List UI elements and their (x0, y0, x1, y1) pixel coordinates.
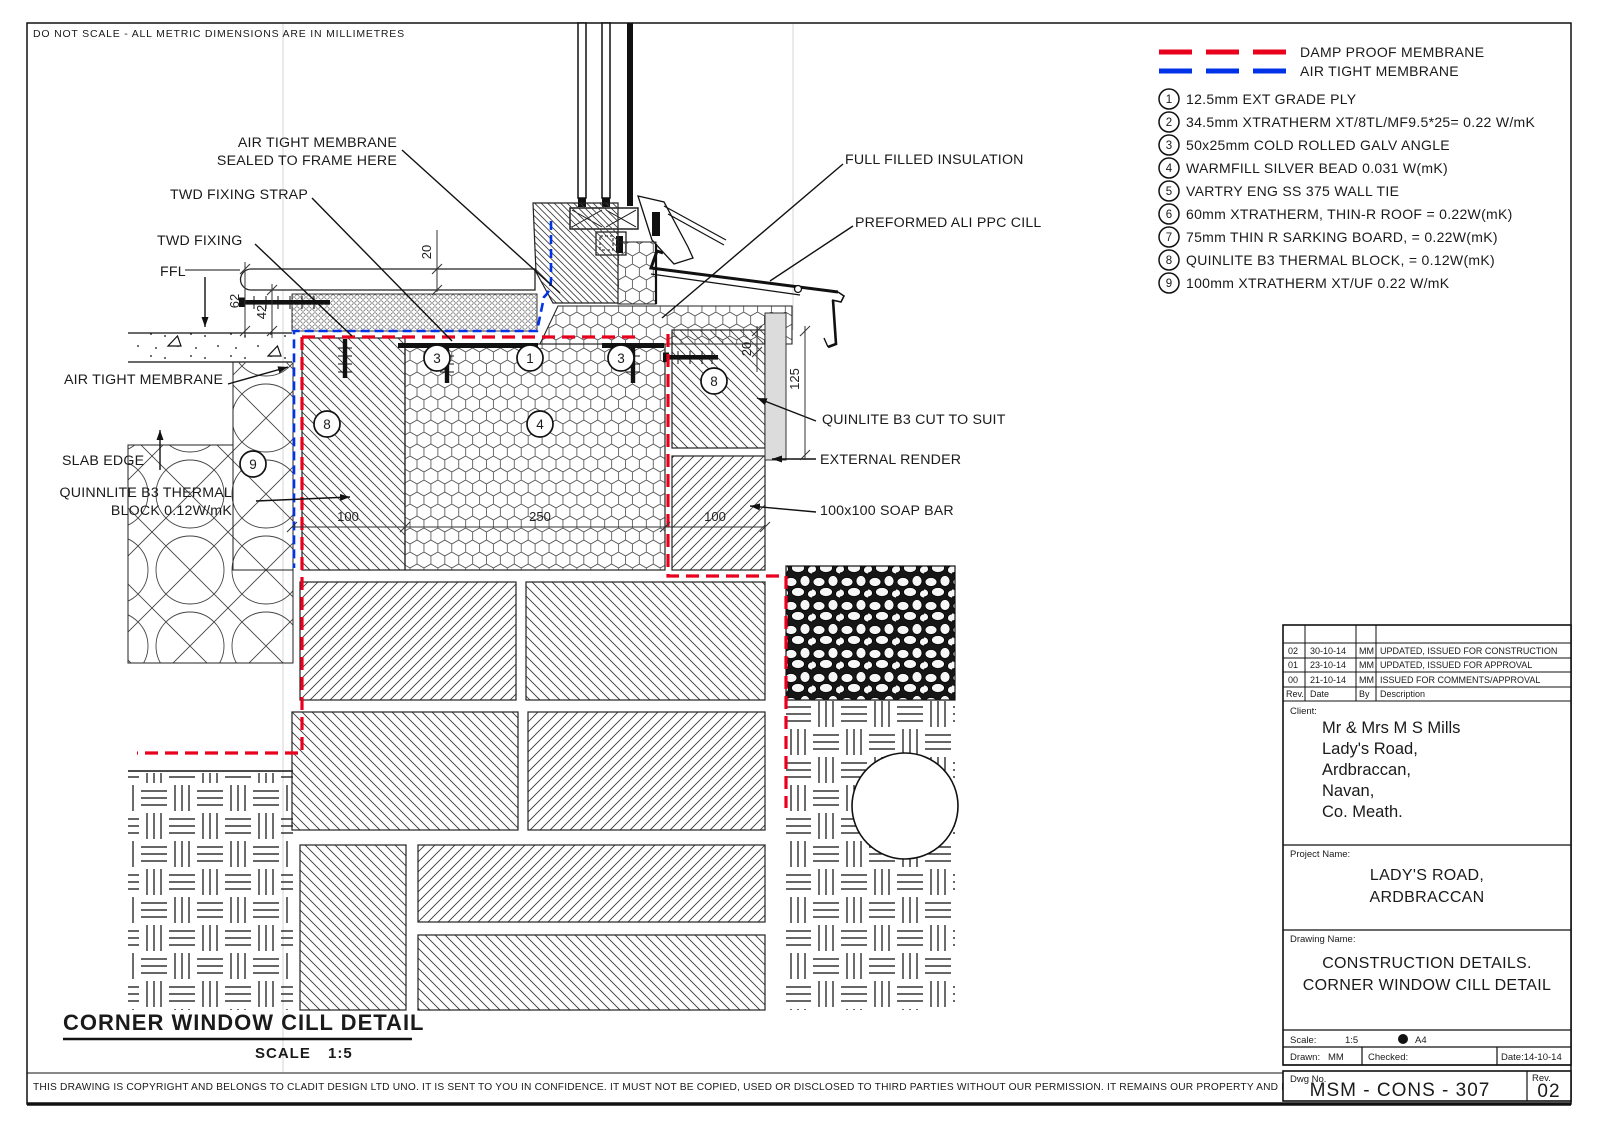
dim-250: 250 (529, 509, 551, 524)
dim-render: 20 (739, 342, 754, 356)
label-twd-fixing: TWD FIXING (157, 233, 243, 249)
svg-text:2: 2 (1166, 117, 1172, 129)
svg-text:4: 4 (1166, 163, 1173, 175)
drawing-name-label: Drawing Name: (1290, 934, 1355, 945)
svg-text:ISSUED FOR COMMENTS/APPROVAL: ISSUED FOR COMMENTS/APPROVAL (1380, 675, 1540, 685)
svg-text:23-10-14: 23-10-14 (1310, 660, 1346, 670)
title-block: 02 30-10-14 MM UPDATED, ISSUED FOR CONST… (1283, 625, 1571, 1102)
drawing-sheet: DO NOT SCALE - ALL METRIC DIMENSIONS ARE… (0, 0, 1600, 1130)
svg-text:Ardbraccan,: Ardbraccan, (1322, 761, 1411, 779)
svg-text:Lady's Road,: Lady's Road, (1322, 740, 1418, 758)
dim-board: 20 (419, 245, 434, 259)
dim-62: 62 (227, 294, 242, 308)
label-ffl: FFL (160, 264, 186, 280)
svg-text:WARMFILL SILVER BEAD 0.031 W(m: WARMFILL SILVER BEAD 0.031 W(mK) (1186, 160, 1448, 176)
label-slab-edge: SLAB EDGE (62, 453, 144, 469)
svg-text:34.5mm XTRATHERM XT/8TL/MF9.5*: 34.5mm XTRATHERM XT/8TL/MF9.5*25= 0.22 W… (1186, 114, 1535, 130)
svg-text:8: 8 (323, 417, 331, 432)
svg-text:50x25mm COLD ROLLED GALV ANGLE: 50x25mm COLD ROLLED GALV ANGLE (1186, 137, 1450, 153)
legend-item-9: 9100mm XTRATHERM XT/UF 0.22 W/mK (1159, 273, 1450, 293)
svg-text:CORNER WINDOW CILL DETAIL: CORNER WINDOW CILL DETAIL (1303, 977, 1551, 994)
svg-text:4: 4 (536, 417, 544, 432)
svg-text:75mm THIN R SARKING BOARD, = 0: 75mm THIN R SARKING BOARD, = 0.22W(mK) (1186, 229, 1498, 245)
legend-item-7: 775mm THIN R SARKING BOARD, = 0.22W(mK) (1159, 227, 1498, 247)
callout-8-left: 8 (314, 411, 340, 437)
svg-text:Navan,: Navan, (1322, 782, 1374, 800)
scale-label: Scale: (1290, 1035, 1316, 1046)
cill-fixing-hole (795, 286, 802, 293)
svg-text:MM: MM (1359, 660, 1374, 670)
legend-item-2: 234.5mm XTRATHERM XT/8TL/MF9.5*25= 0.22 … (1159, 112, 1535, 132)
svg-text:5: 5 (1166, 186, 1172, 198)
svg-text:1: 1 (1166, 94, 1172, 106)
svg-text:LADY'S ROAD,: LADY'S ROAD, (1370, 867, 1484, 884)
slab-band (128, 333, 292, 362)
svg-text:Co. Meath.: Co. Meath. (1322, 803, 1403, 821)
svg-text:00: 00 (1288, 675, 1298, 685)
svg-text:QUINLITE B3 THERMAL BLOCK, = 0: QUINLITE B3 THERMAL BLOCK, = 0.12W(mK) (1186, 252, 1495, 268)
legend-item-4: 4WARMFILL SILVER BEAD 0.031 W(mK) (1159, 158, 1448, 178)
view-scale-value: 1:5 (328, 1045, 353, 1062)
svg-text:MM: MM (1359, 646, 1374, 656)
paper-size-dot-icon (1398, 1034, 1408, 1044)
checked-label: Checked: (1368, 1052, 1408, 1063)
svg-text:02: 02 (1288, 646, 1298, 656)
svg-text:ARDBRACCAN: ARDBRACCAN (1369, 889, 1484, 906)
copyright-footer: THIS DRAWING IS COPYRIGHT AND BELONGS TO… (33, 1082, 1463, 1093)
dim-125: 125 (787, 368, 802, 390)
label-external-render: EXTERNAL RENDER (820, 452, 961, 468)
service-duct-circle (852, 753, 958, 859)
label-preformed-cill: PREFORMED ALI PPC CILL (855, 215, 1042, 231)
label-atm-sealed-2: SEALED TO FRAME HERE (217, 153, 397, 169)
svg-text:9: 9 (1166, 278, 1172, 290)
svg-text:Description: Description (1380, 689, 1425, 699)
label-twd-fixing-strap: TWD FIXING STRAP (170, 187, 308, 203)
svg-text:100mm XTRATHERM XT/UF 0.22 W/m: 100mm XTRATHERM XT/UF 0.22 W/mK (1186, 275, 1450, 291)
callout-3a: 3 (424, 345, 450, 371)
full-fill-insulation-column (618, 242, 656, 304)
legend-item-5: 5VARTRY ENG SS 375 WALL TIE (1159, 181, 1399, 201)
label-quinnlite-1: QUINNLITE B3 THERMAL (60, 485, 232, 501)
legend-item-3: 350x25mm COLD ROLLED GALV ANGLE (1159, 135, 1450, 155)
view-title-text: CORNER WINDOW CILL DETAIL (63, 1010, 425, 1035)
dim-100-left: 100 (337, 509, 359, 524)
rev-value: 02 (1537, 1081, 1560, 1102)
svg-text:Mr & Mrs M S Mills: Mr & Mrs M S Mills (1322, 719, 1460, 737)
damp-proof-membrane-label: DAMP PROOF MEMBRANE (1300, 44, 1484, 60)
svg-text:12.5mm EXT GRADE PLY: 12.5mm EXT GRADE PLY (1186, 91, 1357, 107)
drawn-value: MM (1328, 1052, 1344, 1063)
do-not-scale-note: DO NOT SCALE - ALL METRIC DIMENSIONS ARE… (33, 28, 405, 40)
paper-size: A4 (1415, 1035, 1427, 1046)
dim-100-right: 100 (704, 509, 726, 524)
svg-text:MM: MM (1359, 675, 1374, 685)
svg-text:UPDATED, ISSUED FOR APPROVAL: UPDATED, ISSUED FOR APPROVAL (1380, 660, 1532, 670)
svg-text:7: 7 (1166, 232, 1172, 244)
label-air-tight-membrane: AIR TIGHT MEMBRANE (64, 372, 223, 388)
svg-text:9: 9 (249, 457, 257, 472)
legend-item-8: 8QUINLITE B3 THERMAL BLOCK, = 0.12W(mK) (1159, 250, 1495, 270)
svg-text:8: 8 (1166, 255, 1172, 267)
label-soap-bar: 100x100 SOAP BAR (820, 503, 954, 519)
callout-1: 1 (517, 345, 543, 371)
block-courses (292, 582, 765, 1010)
label-atm-sealed-1: AIR TIGHT MEMBRANE (238, 135, 397, 151)
callout-3b: 3 (608, 345, 634, 371)
callout-4: 4 (527, 411, 553, 437)
drawn-label: Drawn: (1290, 1052, 1320, 1063)
callout-9: 9 (240, 451, 266, 477)
svg-text:8: 8 (710, 374, 718, 389)
external-render-strip (765, 313, 786, 460)
label-quinlite-cut: QUINLITE B3 CUT TO SUIT (822, 412, 1006, 428)
label-full-filled-insulation: FULL FILLED INSULATION (845, 152, 1024, 168)
callout-8-right: 8 (701, 368, 727, 394)
svg-text:3: 3 (1166, 140, 1172, 152)
air-tight-membrane-label: AIR TIGHT MEMBRANE (1300, 63, 1459, 79)
legend-item-1: 112.5mm EXT GRADE PLY (1159, 89, 1357, 109)
svg-text:Date: Date (1310, 689, 1329, 699)
svg-text:21-10-14: 21-10-14 (1310, 675, 1346, 685)
dim-42: 42 (254, 305, 269, 319)
scale-value: 1:5 (1345, 1035, 1358, 1046)
svg-text:CONSTRUCTION DETAILS.: CONSTRUCTION DETAILS. (1322, 955, 1532, 972)
svg-text:60mm XTRATHERM, THIN-R ROOF =: 60mm XTRATHERM, THIN-R ROOF = 0.22W(mK) (1186, 206, 1513, 222)
svg-text:30-10-14: 30-10-14 (1310, 646, 1346, 656)
label-quinnlite-2: BLOCK 0.12W/mK (111, 503, 232, 519)
svg-text:Rev.: Rev. (1286, 689, 1304, 699)
hardcore-fill (786, 566, 955, 700)
view-scale-label: SCALE (255, 1045, 311, 1062)
svg-text:3: 3 (617, 351, 625, 366)
right-basketweave (786, 700, 955, 1010)
svg-text:VARTRY ENG SS 375 WALL TIE: VARTRY ENG SS 375 WALL TIE (1186, 183, 1399, 199)
svg-text:01: 01 (1288, 660, 1298, 670)
svg-text:1: 1 (526, 351, 534, 366)
dwg-no-box: Dwg No. MSM - CONS - 307 Rev. 02 (1283, 1071, 1571, 1102)
left-basketweave (128, 771, 293, 1010)
corner-insulation-block (533, 203, 618, 303)
client-label: Client: (1290, 706, 1317, 717)
svg-text:By: By (1359, 689, 1370, 699)
svg-text:6: 6 (1166, 209, 1172, 221)
warmfill-bead-core (405, 344, 665, 570)
legend-item-6: 660mm XTRATHERM, THIN-R ROOF = 0.22W(mK) (1159, 204, 1513, 224)
dwg-no-value: MSM - CONS - 307 (1310, 1080, 1491, 1101)
svg-text:UPDATED, ISSUED FOR CONSTRUCTI: UPDATED, ISSUED FOR CONSTRUCTION (1380, 646, 1557, 656)
screed-insulation-strip (292, 294, 537, 331)
cad-drawing-canvas: DO NOT SCALE - ALL METRIC DIMENSIONS ARE… (0, 0, 1600, 1130)
svg-text:3: 3 (433, 351, 441, 366)
quinlite-block-left (302, 338, 405, 570)
date-value: Date:14-10-14 (1501, 1052, 1562, 1063)
project-label: Project Name: (1290, 849, 1350, 860)
